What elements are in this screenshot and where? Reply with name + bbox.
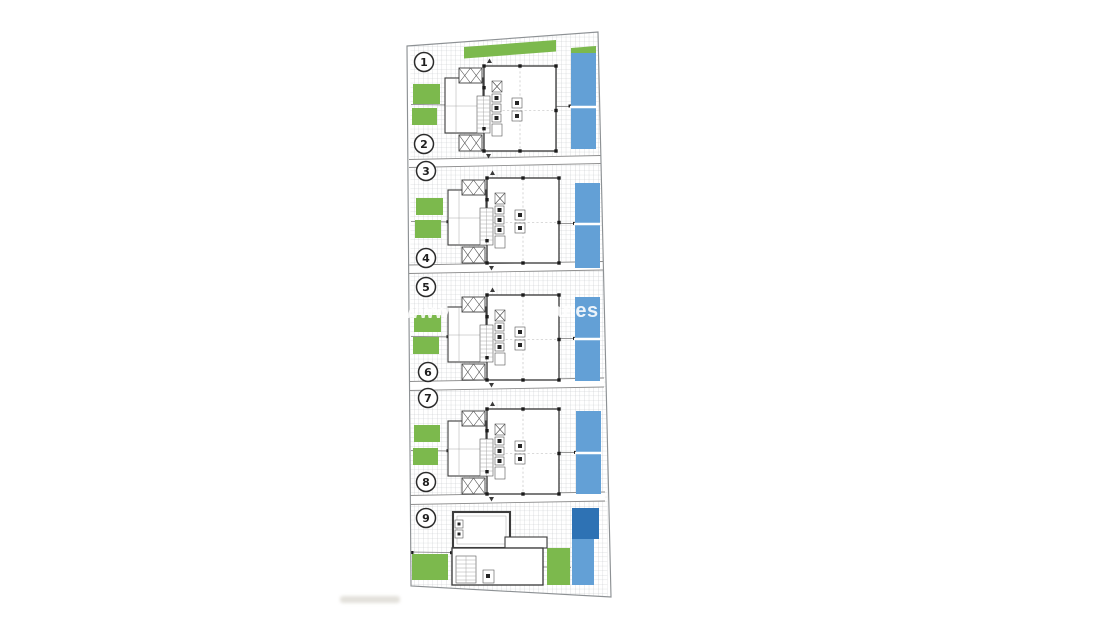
unit-2-label: 2: [420, 138, 428, 151]
watermark-fragment-right: anes: [551, 300, 599, 323]
garden-unit-7: [414, 425, 440, 442]
unit-8-label: 8: [422, 476, 430, 489]
pool-units-3-4: [575, 183, 600, 268]
garden-unit-8: [413, 448, 438, 465]
illegible-small-text: [340, 596, 400, 603]
pool-unit-9: [572, 508, 599, 539]
garden-unit-2: [412, 108, 437, 125]
unit-1-label: 1: [420, 56, 428, 69]
garden-unit-9-left: [412, 554, 448, 580]
site-plan-image: 1 2 3 4 5 6 7 8 9 www anes: [0, 0, 1110, 626]
unit-7-label: 7: [424, 392, 432, 405]
unit-6-label: 6: [424, 366, 432, 379]
garden-unit-6: [413, 337, 439, 354]
garden-unit-4: [415, 220, 441, 238]
unit-4-label: 4: [422, 252, 430, 265]
building-units-5-6: [448, 288, 561, 388]
unit-5-label: 5: [422, 281, 430, 294]
building-units-1-2: [445, 59, 558, 159]
garden-unit-9-right: [547, 548, 570, 585]
unit-3-label: 3: [422, 165, 430, 178]
garden-unit-1: [413, 84, 440, 104]
garden-unit-3: [416, 198, 443, 215]
pool-units-1-2: [571, 53, 596, 149]
terrace-unit-9: [572, 539, 594, 585]
unit-9-label: 9: [422, 512, 430, 525]
watermark-fragment-left: www: [404, 302, 450, 324]
building-units-7-8: [448, 402, 561, 502]
building-units-3-4: [448, 171, 561, 271]
